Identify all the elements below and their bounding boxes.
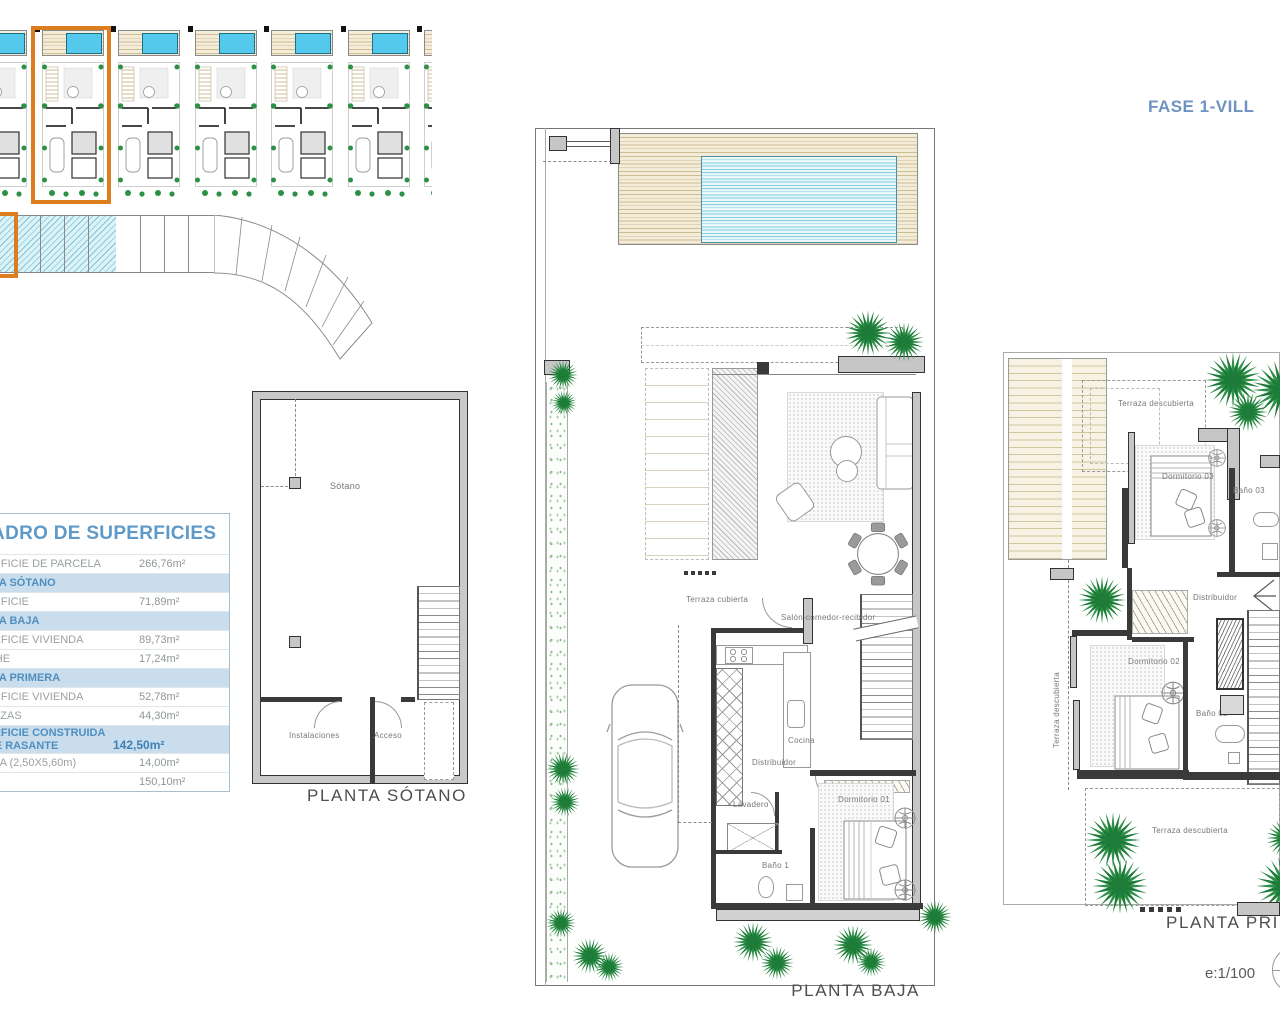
- fence-post: [698, 571, 702, 575]
- plot-pool: [142, 33, 178, 54]
- laundry-appliance: [727, 823, 779, 853]
- area-value: 14,00m²: [139, 757, 221, 769]
- villa-unit: [419, 10, 432, 210]
- tree-icon: [546, 908, 576, 938]
- plot-pool-deck: [424, 30, 432, 56]
- tree-icon: [550, 787, 580, 817]
- paving-joint: [40, 215, 41, 273]
- fence-post: [705, 571, 709, 575]
- areas-table-row: TERRAZAS 44,30m²: [0, 706, 229, 725]
- bathtub: [1215, 725, 1245, 743]
- exterior-wall: [1188, 772, 1280, 780]
- sheet-phase-title: FASE 1-VILL: [1148, 97, 1255, 117]
- exterior-wall: [1128, 432, 1135, 544]
- paving-joint: [140, 215, 141, 273]
- areas-table-body: SUPERFICIE DE PARCELA 266,76m² PLANTA SÓ…: [0, 554, 229, 791]
- areas-table-row: 150,10m²: [0, 772, 229, 791]
- exterior-wall: [1073, 700, 1080, 770]
- tree-icon: [1266, 818, 1280, 858]
- areas-table-row: SUPERFICIE CONSTRUIDA SOBRE RASANTE 142,…: [0, 725, 229, 753]
- area-label: SUPERFICIE DE PARCELA: [0, 558, 139, 571]
- slat-gap: [1062, 359, 1072, 559]
- plot-pool: [295, 33, 331, 54]
- gate-pillar: [549, 136, 567, 151]
- plot-pool-deck: [118, 30, 180, 56]
- areas-table-row: PLANTA SÓTANO: [0, 573, 229, 592]
- partition-wall: [810, 828, 815, 905]
- area-label: SUPERFICIE VIVIENDA: [0, 634, 139, 647]
- bathroom-sink: [786, 884, 803, 901]
- bed: [1150, 455, 1212, 537]
- sofa: [876, 396, 914, 490]
- stair-arrow: [1250, 578, 1278, 614]
- ceiling-fan: [1207, 518, 1227, 538]
- areas-table: CUADRO DE SUPERFICIES SUPERFICIE DE PARC…: [0, 513, 230, 792]
- bed: [1114, 695, 1180, 770]
- side-table: [836, 460, 858, 482]
- room-label-salon: Salón-comedor-recibidor: [781, 613, 876, 622]
- tree-icon: [548, 360, 578, 390]
- villa-unit: [0, 10, 32, 210]
- plot-boundary-tick: [341, 26, 346, 32]
- tree-icon: [1092, 858, 1148, 914]
- plot-pool: [0, 33, 25, 54]
- interior-wall: [711, 628, 811, 633]
- room-label-bano1: Baño 1: [762, 861, 789, 870]
- partition-wall: [1072, 630, 1132, 636]
- plot-floorplan: [348, 62, 410, 200]
- area-value: 52,78m²: [139, 691, 221, 703]
- area-value: 266,76m²: [139, 558, 221, 570]
- room-label-distribuidor: Distribuidor: [752, 758, 796, 767]
- plot-pool-deck: [195, 30, 257, 56]
- staircase: [1247, 610, 1280, 785]
- plot-pool: [372, 33, 408, 54]
- area-label: SUPERFICIE VIVIENDA: [0, 691, 139, 704]
- room-label-instalaciones: Instalaciones: [289, 731, 340, 740]
- room-label-terraza-bottom: Terraza descubierta: [1152, 826, 1228, 835]
- partition-wall: [1217, 572, 1280, 577]
- rear-deck: [716, 909, 920, 921]
- partition-wall: [1183, 640, 1188, 780]
- partition-wall: [714, 850, 782, 854]
- wardrobe: [1132, 590, 1188, 634]
- area-value: 44,30m²: [139, 710, 221, 722]
- fence-post: [1176, 907, 1181, 912]
- areas-table-row: SUPERFICIE VIVIENDA 89,73m²: [0, 630, 229, 649]
- plot-floorplan: [424, 62, 432, 200]
- area-value: 150,10m²: [139, 776, 221, 788]
- villa-unit: [190, 10, 262, 210]
- driveway-boundary: [678, 625, 679, 823]
- dining-table: [844, 520, 912, 588]
- room-label-terraza-left: Terraza descubierta: [1052, 672, 1061, 748]
- room-label-sotano: Sótano: [330, 481, 360, 491]
- areas-table-row: PLANTA BAJA: [0, 611, 229, 630]
- bathtub: [1253, 512, 1279, 527]
- exterior-wall: [1260, 455, 1280, 468]
- area-value: 71,89m²: [139, 596, 221, 608]
- glazing-line: [712, 374, 916, 375]
- basement-plan-title: PLANTA SÓTANO: [285, 786, 467, 806]
- fence-post: [691, 571, 695, 575]
- plot-boundary-tick: [111, 26, 116, 32]
- plot-floorplan: [118, 62, 180, 200]
- bathroom-sink: [1220, 695, 1244, 715]
- ground-floor-plan-title: PLANTA BAJA: [740, 981, 920, 1001]
- area-value: 89,73m²: [139, 634, 221, 646]
- fence-post: [684, 571, 688, 575]
- villa-unit: [343, 10, 415, 210]
- partition-wall: [260, 697, 342, 702]
- room-label-cocina: Cocina: [788, 736, 815, 745]
- plot-pool-deck: [0, 30, 27, 56]
- room-label-dormitorio1: Dormitorio 01: [838, 795, 890, 804]
- areas-table-row: PORCHE 17,24m²: [0, 649, 229, 668]
- partition-wall: [1229, 468, 1235, 574]
- stair-void: [424, 702, 454, 780]
- promenade-paved-section: [116, 215, 214, 273]
- pergola-slats: [645, 368, 709, 560]
- villa-unit: [113, 10, 185, 210]
- area-label: PLANTA SÓTANO: [0, 577, 139, 590]
- room-label-dormitorio2: Dormitorio 02: [1128, 657, 1180, 666]
- highlighted-plot-frame: [31, 26, 111, 204]
- staircase: [417, 586, 460, 700]
- areas-table-row: SUPERFICIE VIVIENDA 52,78m²: [0, 687, 229, 706]
- tree-icon: [551, 390, 577, 416]
- ramp-hatch: [712, 368, 758, 560]
- plot-floorplan: [195, 62, 257, 200]
- fence-post: [1167, 907, 1172, 912]
- plot-boundary-tick: [188, 26, 193, 32]
- architectural-sheet: CUADRO DE SUPERFICIES SUPERFICIE DE PARC…: [0, 0, 1280, 1024]
- paving-joint: [88, 215, 89, 273]
- fence-post: [1158, 907, 1163, 912]
- fence-post: [1149, 907, 1154, 912]
- swimming-pool: [701, 156, 897, 243]
- room-label-lavadero: Lavadero: [733, 800, 769, 809]
- plot-boundary-tick: [264, 26, 269, 32]
- area-value: 142,50m²: [113, 738, 195, 752]
- ceiling-fan: [1207, 448, 1227, 468]
- tree-icon: [760, 946, 794, 980]
- fence-line: [567, 146, 613, 147]
- exterior-wall: [1077, 770, 1189, 779]
- column: [289, 477, 301, 489]
- area-label: PISCINA (2,50X5,60m): [0, 757, 139, 770]
- paving-joint: [188, 215, 189, 273]
- scale-label: e:1/100: [1205, 965, 1255, 982]
- bathroom-sink: [1262, 543, 1278, 560]
- highlighted-plot-frame-secondary: [0, 212, 18, 278]
- area-label: PLANTA BAJA: [0, 615, 139, 628]
- paving-joint: [164, 215, 165, 273]
- area-value: 17,24m²: [139, 653, 221, 665]
- room-label-acceso: Acceso: [374, 731, 402, 740]
- reference-line: [295, 399, 296, 481]
- plot-floorplan: [0, 62, 27, 200]
- reference-line: [543, 161, 612, 162]
- areas-table-row: SUPERFICIE 71,89m²: [0, 592, 229, 611]
- tree-icon: [918, 900, 952, 934]
- north-indicator-line: [1272, 970, 1280, 971]
- area-label: SUPERFICIE CONSTRUIDA SOBRE RASANTE: [0, 727, 113, 752]
- exterior-wall: [1070, 636, 1077, 688]
- plot-floorplan: [271, 62, 333, 200]
- tree-icon: [546, 752, 580, 786]
- plot-pool-deck: [271, 30, 333, 56]
- gate-pillar: [610, 128, 620, 164]
- areas-table-row: PLANTA PRIMERA: [0, 668, 229, 687]
- areas-table-row: PISCINA (2,50X5,60m) 14,00m²: [0, 753, 229, 772]
- cooktop: [725, 647, 753, 664]
- ceiling-fan: [893, 878, 917, 902]
- partition-wall: [1122, 488, 1128, 568]
- cabinet-run: [716, 668, 743, 806]
- garden-wall: [1050, 568, 1074, 580]
- room-label-dormitorio3: Dormitorio 03: [1162, 472, 1214, 481]
- area-label: PLANTA PRIMERA: [0, 672, 139, 685]
- tree-icon: [594, 952, 624, 982]
- terrace-boundary: [1068, 560, 1069, 790]
- paving-joint: [64, 215, 65, 273]
- column: [289, 636, 301, 648]
- fence-post: [712, 571, 716, 575]
- plot-boundary-tick: [417, 26, 422, 32]
- plot-pool: [219, 33, 255, 54]
- ceiling-fan: [893, 806, 917, 830]
- tree-icon: [1228, 392, 1268, 432]
- room-label-distribuidor-p1: Distribuidor: [1193, 593, 1237, 602]
- area-label: PORCHE: [0, 653, 139, 666]
- areas-table-row: SUPERFICIE DE PARCELA 266,76m²: [0, 554, 229, 573]
- tree-icon: [884, 322, 924, 362]
- kitchen-sink: [787, 700, 805, 728]
- column: [757, 362, 769, 374]
- areas-table-title: CUADRO DE SUPERFICIES: [0, 514, 229, 554]
- planting-strip: [546, 382, 568, 982]
- first-floor-plan-title: PLANTA PRIMERA: [1166, 913, 1280, 933]
- fence-line: [567, 141, 613, 142]
- fence-post: [1140, 907, 1145, 912]
- tree-icon: [1078, 576, 1126, 624]
- room-label-terraza-cubierta: Terraza cubierta: [686, 595, 748, 604]
- area-label: SUPERFICIE: [0, 596, 139, 609]
- partition-wall: [401, 697, 415, 702]
- exterior-wall: [912, 392, 921, 908]
- villa-unit: [266, 10, 338, 210]
- closet: [1216, 618, 1244, 690]
- plot-pool-deck: [348, 30, 410, 56]
- tree-icon: [856, 947, 886, 977]
- promenade-curved-section: [214, 215, 404, 365]
- area-label: TERRAZAS: [0, 710, 139, 723]
- car-icon: [606, 682, 684, 870]
- room-label-bano3: Baño 03: [1233, 486, 1265, 495]
- toilet: [758, 876, 774, 898]
- driveway-boundary: [678, 822, 712, 823]
- bidet: [1228, 752, 1240, 764]
